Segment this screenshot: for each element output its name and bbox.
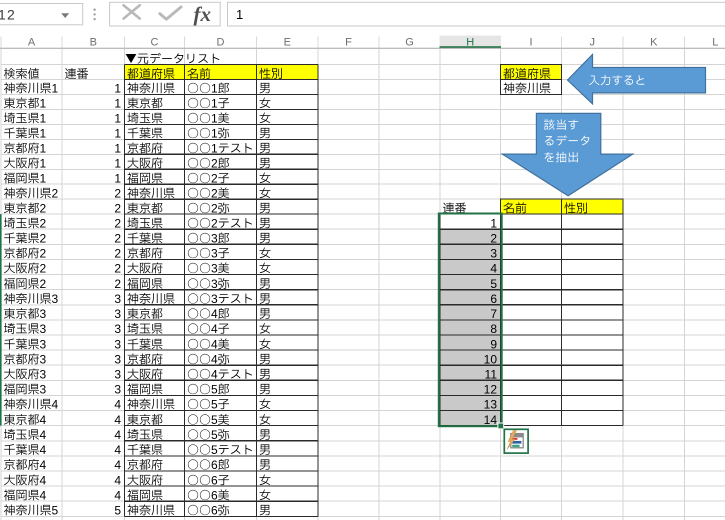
svg-text:J: J (590, 36, 596, 48)
svg-text:fx: fx (194, 2, 212, 26)
svg-text:1: 1 (236, 5, 243, 25)
svg-text:性別: 性別 (564, 200, 588, 218)
svg-text:○○6弥: ○○6弥 (187, 503, 230, 520)
svg-text:G: G (405, 36, 414, 48)
svg-text:男: 男 (259, 503, 271, 520)
svg-text:るデータ: るデータ (544, 134, 592, 151)
svg-text:神奈川県: 神奈川県 (503, 81, 551, 99)
svg-text:E: E (284, 36, 291, 48)
svg-text:L: L (712, 36, 718, 48)
svg-text:12: 12 (0, 6, 16, 27)
svg-text:D: D (217, 36, 225, 48)
svg-text:I: I (529, 36, 532, 48)
svg-text:神奈川県5: 神奈川県5 (4, 503, 59, 520)
svg-text:連番: 連番 (443, 200, 467, 218)
svg-text:B: B (90, 36, 97, 48)
svg-text:K: K (650, 36, 658, 48)
svg-text:神奈川県: 神奈川県 (127, 503, 175, 520)
svg-text:該当す: 該当す (544, 118, 580, 135)
svg-text:を抽出: を抽出 (544, 151, 580, 168)
svg-text:5: 5 (114, 503, 121, 520)
svg-text:C: C (151, 36, 159, 48)
svg-text:A: A (28, 36, 36, 48)
svg-text:入力すると: 入力すると (589, 74, 647, 91)
svg-text:連番: 連番 (65, 66, 89, 84)
svg-text:F: F (345, 36, 352, 48)
svg-text:名前: 名前 (503, 200, 527, 218)
svg-text:H: H (466, 36, 474, 48)
